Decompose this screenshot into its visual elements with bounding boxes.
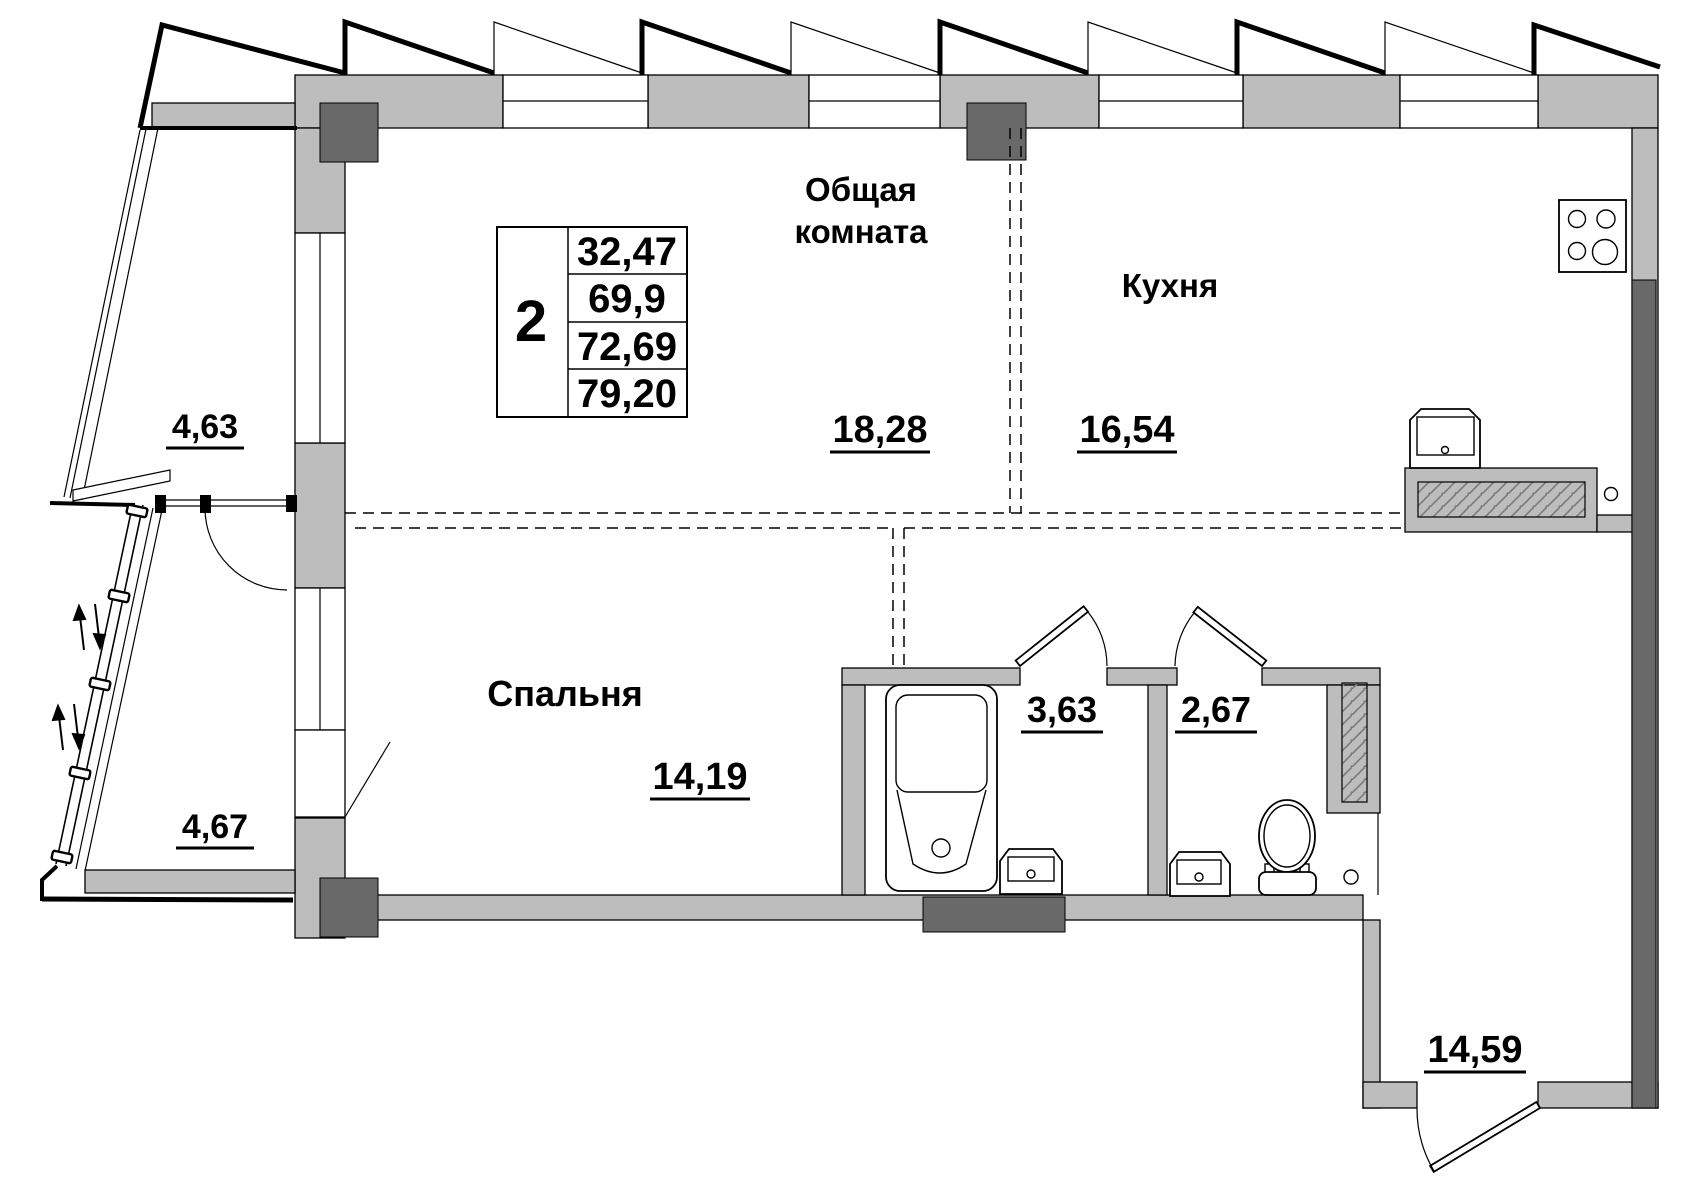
balcony-top-wall <box>152 103 295 128</box>
balcony-divider-edge <box>50 503 135 505</box>
sliding-handles <box>51 505 147 864</box>
sawtooth-thin-4 <box>1385 22 1534 75</box>
kitchen-area: 16,54 <box>1079 409 1174 451</box>
area-table: 2 32,47 69,9 72,69 79,20 <box>497 227 687 417</box>
living-room-label-line2: комната <box>794 213 928 250</box>
living-room-area: 18,28 <box>832 409 927 451</box>
kitchen-vent-hatch <box>1418 482 1585 517</box>
bath-left-wall <box>842 685 865 895</box>
area-value-3: 72,69 <box>577 325 677 369</box>
pillar-top-left <box>320 103 378 162</box>
entrance-door-arc <box>1417 1108 1434 1171</box>
toilet-sink <box>1170 852 1230 896</box>
sawtooth-thin-3 <box>1088 22 1237 75</box>
bath-divider-wall <box>1148 685 1167 895</box>
bedroom-label: Спальня <box>487 673 643 714</box>
kitchen-sink <box>1410 409 1480 468</box>
bathroom-sink <box>1000 849 1062 894</box>
bathroom-area: 3,63 <box>1027 689 1097 730</box>
door-post-1 <box>155 495 166 513</box>
sawtooth-thin-1 <box>494 22 642 75</box>
toilet-drain-point <box>1344 870 1358 884</box>
wall-right-dark-strip <box>1632 280 1656 1108</box>
toilet-area: 2,67 <box>1181 689 1251 730</box>
area-value-4: 79,20 <box>577 372 677 416</box>
upper-glazing-line-2 <box>70 129 146 498</box>
sliding-direction-arrows <box>53 604 105 750</box>
wall-top-corner <box>1538 75 1658 128</box>
living-room-label-line1: Общая <box>805 171 917 208</box>
upper-glazing-line-3 <box>82 128 158 500</box>
wall-bottom-band <box>345 895 1363 920</box>
pillar-bottom-left <box>320 878 378 937</box>
door-handle <box>286 495 297 512</box>
lower-glazing-line-3 <box>76 508 153 869</box>
balcony-bottom-wall <box>85 870 295 893</box>
sawtooth-thick-6 <box>1534 25 1660 75</box>
pillar-bottom-middle <box>923 897 1065 932</box>
stove <box>1559 200 1626 272</box>
upper-glazing-line-1 <box>64 130 140 497</box>
balcony-upper-area: 4,63 <box>172 408 238 446</box>
sawtooth-thick-5 <box>1237 22 1385 75</box>
bath-top-wall-1 <box>842 668 1020 685</box>
pillar-top-middle <box>967 103 1026 160</box>
sawtooth-thick-4 <box>940 22 1088 75</box>
balcony-door-opening <box>295 730 345 817</box>
hall-left-wall <box>1363 920 1380 1108</box>
area-value-2: 69,9 <box>588 277 666 321</box>
balcony-door-leaf <box>345 742 390 817</box>
toilet-door-arc <box>1175 613 1194 666</box>
hallway-area: 14,59 <box>1427 1029 1522 1071</box>
floor-plan-canvas: Общая комната 18,28 Кухня 16,54 Спальня … <box>0 0 1686 1194</box>
rooms-count-value: 2 <box>515 289 547 354</box>
balcony-lower-area: 4,67 <box>182 808 248 846</box>
lower-glazing-line-4 <box>85 510 162 871</box>
bathroom-door-arc <box>1088 612 1107 666</box>
bathtub <box>886 685 997 891</box>
bath-vent-hatch <box>1342 683 1367 802</box>
sawtooth-thin-2 <box>791 22 940 75</box>
kitchen-drain-point <box>1605 488 1618 501</box>
floor-plan-drawing: Общая комната 18,28 Кухня 16,54 Спальня … <box>0 0 1686 1194</box>
area-value-1: 32,47 <box>577 230 677 274</box>
balcony-glazing <box>42 128 297 901</box>
bath-top-wall-2 <box>1107 668 1177 685</box>
kitchen-label: Кухня <box>1122 267 1218 304</box>
wall-bottom-right-a <box>1363 1082 1417 1108</box>
kitchen-counter-extension <box>1597 515 1632 532</box>
entrance-door-leaf <box>1430 1102 1540 1172</box>
balcony-divider-door-arc <box>205 508 287 590</box>
bedroom-area: 14,19 <box>652 756 747 798</box>
sawtooth-thick-3 <box>642 22 791 75</box>
toilet <box>1259 800 1316 895</box>
toilet-door-leaf <box>1193 607 1266 666</box>
balcony-bottom-corner <box>42 866 57 901</box>
wall-top-pier-b <box>648 75 809 128</box>
wall-left-pier-2 <box>295 443 345 588</box>
balcony-bottom-edge <box>42 899 293 900</box>
sawtooth-thick-2 <box>345 22 494 75</box>
wall-top-pier-d <box>1243 75 1400 128</box>
bathroom-door-leaf <box>1016 606 1088 666</box>
